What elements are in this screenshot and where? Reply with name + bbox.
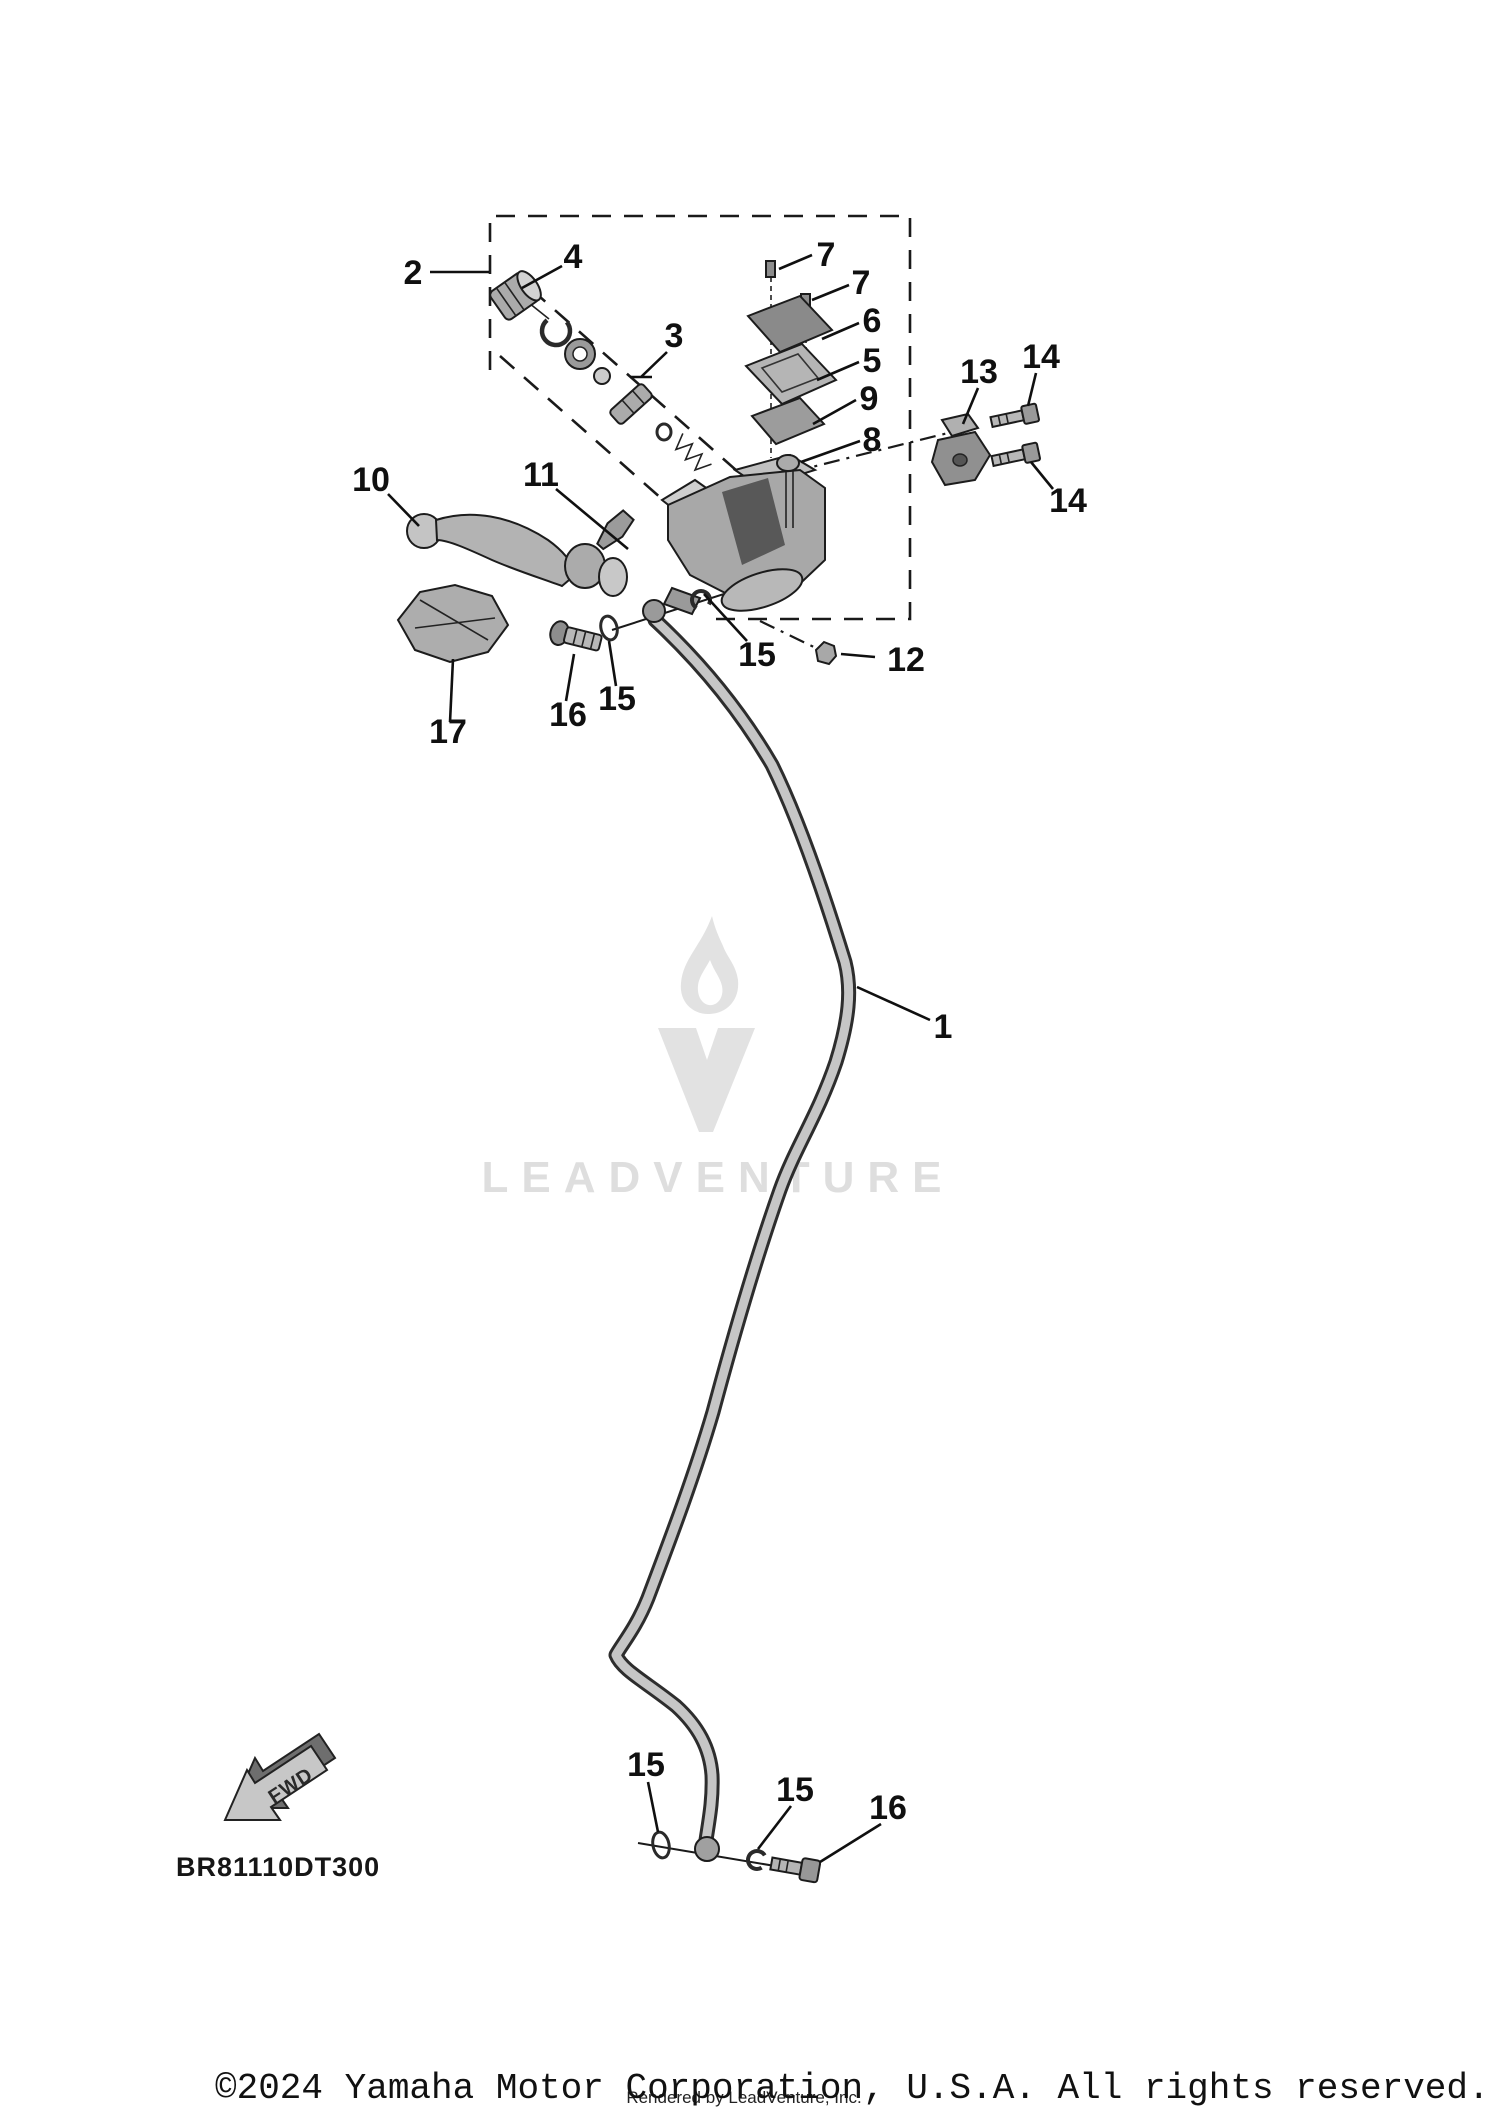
callout-14-lower: 14 — [1049, 482, 1087, 520]
part-code: BR81110DT300 — [176, 1852, 380, 1882]
piston — [609, 383, 654, 426]
clamp-bolt-14-upper — [990, 403, 1040, 430]
callout-12: 12 — [887, 641, 925, 679]
brake-hose — [616, 620, 849, 1840]
reservoir-stack — [746, 261, 836, 471]
bolt-head — [1022, 442, 1040, 463]
callout-3: 3 — [665, 317, 684, 355]
bolt-shaft — [563, 627, 602, 651]
leader-16-bottom — [820, 1824, 881, 1862]
leader-7b — [812, 285, 849, 300]
callout-17: 17 — [429, 713, 467, 751]
callout-10: 10 — [352, 461, 390, 499]
callout-5: 5 — [863, 342, 882, 380]
reservoir-cap-6 — [748, 296, 832, 352]
piston-body — [609, 383, 654, 426]
seal-ring — [594, 368, 610, 384]
flange-nut-12 — [816, 642, 836, 664]
clamp-group — [816, 403, 1040, 664]
leader-14-upper — [1028, 373, 1036, 406]
adjuster-11 — [593, 508, 636, 553]
lower-banjo-group — [650, 1831, 820, 1883]
diaphragm-holder-5 — [746, 344, 836, 404]
callout-1: 1 — [934, 1008, 953, 1046]
leader-1 — [857, 987, 930, 1020]
callout-15-mid: 15 — [738, 636, 776, 674]
diaphragm-9 — [752, 398, 824, 444]
fwd-arrow: FWD — [225, 1734, 335, 1820]
callout-8: 8 — [863, 421, 882, 459]
callout-2: 2 — [404, 254, 423, 292]
hose-banjo-upper — [643, 600, 665, 622]
leader-3 — [630, 352, 667, 377]
dashed-axis-band-upper — [531, 289, 745, 478]
leader-15-bottom-left — [648, 1782, 658, 1832]
watermark-brand-text: LEADVENTURE — [481, 1153, 954, 1202]
callout-7a: 7 — [817, 236, 836, 274]
spring-coils — [671, 433, 711, 475]
master-cylinder-body — [662, 455, 825, 619]
brake-lever-10 — [436, 515, 576, 586]
copyright-text: ©2024 Yamaha Motor Corporation, U.S.A. A… — [215, 2068, 1490, 2109]
callout-15-upper: 15 — [598, 680, 636, 718]
leadventure-watermark: LEADVENTURE — [481, 916, 954, 1202]
banjo-bolt-16-upper — [548, 619, 603, 655]
piston-spring — [671, 433, 711, 475]
reservoir-cap-2-4 — [488, 267, 545, 321]
callout-13: 13 — [960, 353, 998, 391]
callout-9: 9 — [860, 380, 879, 418]
sealing-washer-15c — [650, 1831, 671, 1860]
screw-8 — [777, 455, 799, 471]
leader-16-upper — [566, 654, 574, 701]
bolt-head — [799, 1858, 821, 1883]
leader-15-bottom-mid — [758, 1806, 791, 1849]
leader-12 — [841, 654, 875, 657]
callout-14-upper: 14 — [1022, 338, 1060, 376]
brake-hose-fill — [616, 620, 849, 1840]
clamp-hole — [953, 454, 967, 466]
callout-15-bottom-left: 15 — [627, 1746, 665, 1784]
adjuster-body — [593, 508, 636, 553]
callout-11: 11 — [523, 456, 559, 494]
parts-diagram-svg: LEADVENTURE — [0, 0, 1500, 2115]
callout-16-upper: 16 — [549, 696, 587, 734]
callout-7b: 7 — [852, 264, 871, 302]
banjo-bolt-16-lower — [769, 1853, 820, 1883]
sealing-washer-15d — [745, 1848, 770, 1873]
hose-banjo-lower — [695, 1837, 719, 1861]
brake-hose-outline — [616, 620, 849, 1840]
leader-8 — [801, 441, 860, 462]
leader-10 — [388, 494, 419, 526]
callout-4: 4 — [564, 238, 583, 276]
parts-diagram-page: LEADVENTURE — [0, 0, 1500, 2115]
leader-7a — [779, 255, 812, 269]
bolt-head — [1021, 403, 1039, 424]
piston-o-ring — [657, 424, 671, 440]
washer-hole — [573, 347, 587, 361]
callout-16-bottom: 16 — [869, 1789, 907, 1827]
lever-clevis-2 — [599, 558, 627, 596]
callout-15-bottom-mid: 15 — [776, 1771, 814, 1809]
callout-6: 6 — [863, 302, 882, 340]
reservoir-screw-7a — [766, 261, 775, 277]
leader-9 — [813, 400, 856, 424]
